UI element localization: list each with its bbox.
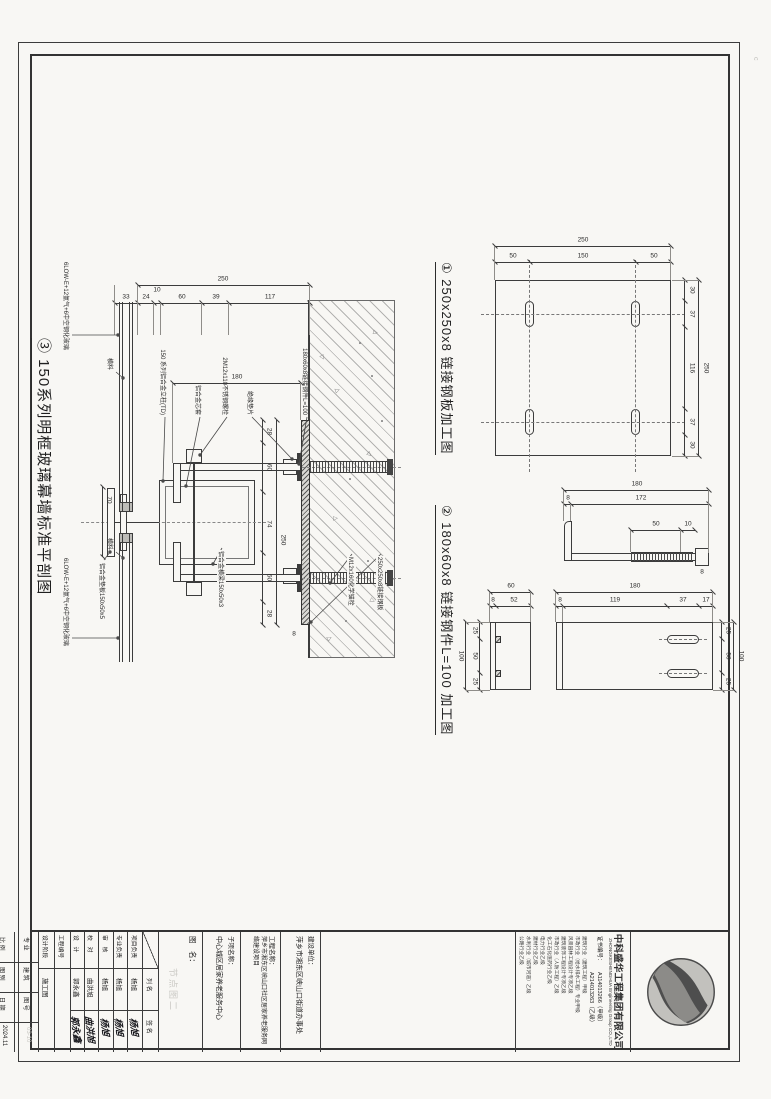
- dim-text: 37: [689, 418, 696, 425]
- line: [563, 490, 564, 521]
- line: [713, 622, 734, 623]
- line: [672, 280, 699, 281]
- weld-mark: [495, 670, 501, 677]
- label-member-right: 横料: [106, 538, 115, 550]
- centerline: [529, 260, 530, 472]
- cert-label: 证书编号：: [596, 936, 604, 964]
- dim-text: 8: [558, 597, 562, 604]
- angle-end-view: [490, 622, 531, 690]
- drawing-type-label: 图 别: [0, 967, 7, 981]
- plate-thickness-dim: 8: [292, 631, 296, 638]
- line: [153, 303, 154, 335]
- col-sign-header: 签 名: [145, 1020, 154, 1034]
- design-stage-value: 施工图: [41, 978, 51, 998]
- concrete-symbol: △: [372, 329, 380, 335]
- owner-value: 萍乡市湘东区峡山口街道办事处: [294, 936, 304, 1034]
- design-stage-row: 设计阶段 施工图: [39, 932, 55, 1052]
- sig-role: 审 核: [101, 935, 110, 952]
- speckle: [368, 560, 370, 562]
- anchor-cap: [387, 570, 393, 586]
- line: [680, 530, 681, 552]
- company-name: 中科盛华工程集团有限公司: [612, 932, 626, 1052]
- element: 化工石化医药行业乙级: [545, 936, 552, 1050]
- centerline: [481, 314, 685, 315]
- date-value: 2024.11: [1, 1025, 7, 1046]
- label-mullion: 150 系列铝合金立柱(TD): [159, 310, 168, 415]
- dim-line: [556, 606, 713, 607]
- dim-text: 52: [510, 597, 517, 604]
- speckle: [360, 342, 362, 344]
- sig-signature: 杨旭: [127, 1018, 142, 1037]
- centerline: [635, 260, 636, 472]
- dim-text: 37: [689, 310, 696, 317]
- sig-name: 杨旭: [101, 978, 111, 991]
- dim-text: 30: [689, 286, 696, 293]
- title-block: 中科盛华工程集团有限公司 ZHONGKESHENGHUA Engineering…: [30, 930, 730, 1050]
- dim-text: 17: [702, 597, 709, 604]
- sig-role: 项目负责: [130, 935, 139, 958]
- threaded-section: [631, 552, 693, 562]
- glass-line: [119, 533, 120, 662]
- bolt-nut-right: [186, 582, 202, 596]
- angle-foot: [564, 521, 572, 561]
- anchor-cap: [387, 459, 393, 475]
- sig-name: 郭永鑫: [72, 978, 82, 998]
- drawing-no-value: 03-10: [25, 1027, 31, 1042]
- line: [0, 992, 38, 993]
- dim-line: [138, 285, 310, 286]
- label-angle: 180x60x8链接钢件L=100: [301, 310, 310, 415]
- dim-text: 60: [266, 574, 273, 581]
- dim-line: [465, 622, 466, 690]
- dim-text: 250: [578, 237, 589, 244]
- dim-text: 30: [689, 441, 696, 448]
- steel-plate-outline: [495, 280, 671, 456]
- element: 市政行业（给水排水工程）专业甲级: [573, 936, 580, 1050]
- line: [555, 592, 556, 622]
- dim-text: 50: [472, 652, 479, 659]
- label-bolt: 2M12x110不锈钢螺栓: [221, 310, 230, 415]
- dim-text: 50: [725, 652, 732, 659]
- glass-line: [132, 533, 133, 662]
- dim-text: 28: [266, 428, 273, 435]
- label-member-left: 横料: [106, 358, 115, 370]
- line: [114, 285, 115, 335]
- dim-text: 10: [684, 521, 691, 528]
- dim-text: 180: [232, 374, 243, 381]
- dim-text: 33: [123, 294, 130, 301]
- dim-line: [721, 622, 722, 690]
- sig-role: 设 计: [72, 935, 81, 952]
- dim-text: 25: [725, 627, 732, 634]
- dim-text: 25: [725, 678, 732, 685]
- dim-line: [684, 280, 685, 456]
- line: [670, 246, 671, 280]
- speckle: [346, 620, 348, 622]
- line: [530, 592, 531, 622]
- dim-text: 50: [509, 253, 516, 260]
- sig-signature: 曲洪旭: [82, 1016, 98, 1044]
- dim-line: [495, 262, 671, 263]
- line: [712, 592, 713, 622]
- drawing-name-label: 图 名：: [187, 936, 198, 966]
- owner-cell: 建设单位： 萍乡市湘东区峡山口街道办事处: [281, 932, 321, 1052]
- dim-text: 150: [578, 253, 589, 260]
- sig-signature: 杨旭: [98, 1018, 113, 1037]
- dim-line: [490, 592, 531, 593]
- dim-text: 8: [700, 569, 704, 576]
- col-name-header: 列 名: [145, 978, 154, 992]
- wall-edge: [310, 300, 395, 301]
- dim-text: 116: [689, 363, 696, 373]
- plate-edge-line: [495, 622, 496, 690]
- label-backplate: 铝合金垫板150x50x5: [98, 562, 107, 620]
- sig-name: 曲洪旭: [86, 978, 96, 998]
- dim-text: 117: [265, 294, 275, 301]
- dim-text: 250: [280, 535, 287, 546]
- line: [172, 383, 173, 463]
- line: [0, 1022, 38, 1023]
- label-glass-left: 6LOW-E+12氩气+6中空钢化玻璃: [62, 262, 71, 350]
- cert-number-1: A114013266（甲级）: [596, 972, 604, 1025]
- centerline: [659, 673, 707, 674]
- dim-text: 60: [178, 294, 185, 301]
- dim-text: 100: [458, 651, 465, 662]
- dim-line: [698, 280, 699, 456]
- element: 风景园林工程设计专项乙级: [566, 936, 573, 1050]
- glass-line: [122, 533, 123, 662]
- dim-line: [115, 303, 310, 304]
- through-bolt: [193, 453, 195, 592]
- dim-text: 250: [703, 363, 710, 374]
- detail1-title: ① 250x250x8 链接钢板加工图: [435, 262, 457, 455]
- angle-foot-right: [173, 542, 181, 582]
- dim-line: [173, 383, 301, 384]
- sig-role: 校 对: [86, 935, 95, 952]
- line: [494, 246, 495, 280]
- drawing-no-label: 图 号: [22, 997, 31, 1011]
- corner-mark: c: [752, 57, 759, 61]
- label-anchor: M12x160化学锚栓: [347, 556, 356, 607]
- element: 公路行业乙级: [517, 936, 524, 1050]
- design-stage-label: 设计阶段: [41, 935, 50, 958]
- major-label: 专 业: [22, 937, 31, 951]
- line: [0, 962, 38, 963]
- element: 建筑行业（建筑工程）甲级: [580, 936, 587, 1050]
- dim-line: [556, 592, 713, 593]
- dim-text: 37: [679, 597, 686, 604]
- dim-line: [276, 420, 277, 625]
- dim-line: [564, 504, 709, 505]
- dim-line: [262, 420, 263, 625]
- dim-text: 250: [218, 276, 229, 283]
- glass-line: [122, 302, 123, 512]
- glass-line: [119, 302, 120, 512]
- dim-text: 119: [610, 597, 620, 604]
- dim-line: [495, 246, 671, 247]
- weld-mark: [495, 636, 501, 643]
- drawing-name-cell: 图 名： 节点图二: [159, 932, 203, 1052]
- label-glass-right: 6LOW-E+12氩气+6中空钢化玻璃: [62, 558, 71, 646]
- element: 市政行业（人防工程）乙级: [552, 936, 559, 1050]
- rod-end-cap: [695, 548, 709, 566]
- anchor-plate-edge: [301, 420, 310, 625]
- dim-text: 28: [266, 610, 273, 617]
- line: [54, 968, 70, 969]
- label-transom-profile: 铝合金横梁150x50x3: [217, 550, 226, 608]
- line: [466, 622, 490, 623]
- drawing-sheet: c 30 37 116 37 30 250 50 150 50: [0, 0, 771, 1099]
- chemical-anchor-bolt: [310, 461, 387, 473]
- line: [570, 504, 571, 521]
- dim-text: 10: [154, 287, 161, 294]
- major-value: 建 筑: [22, 967, 31, 981]
- owner-label: 建设单位：: [307, 936, 317, 969]
- angle-face-view: [556, 622, 713, 690]
- company-cell: 中科盛华工程集团有限公司 ZHONGKESHENGHUA Engineering…: [516, 932, 631, 1052]
- project-label: 工程名称：: [268, 936, 278, 969]
- dim-text: 70: [106, 496, 113, 503]
- dim-text: 180: [632, 481, 643, 488]
- dim-text: 50: [650, 253, 657, 260]
- speckle: [382, 420, 384, 422]
- line: [137, 285, 138, 335]
- line: [672, 456, 699, 457]
- subproject-cell: 子项名称： 中心城区居家养老服务中心: [203, 932, 241, 1052]
- sig-name: 杨旭: [115, 978, 125, 991]
- centerline: [481, 422, 685, 423]
- label-gasket: 绝缘垫片: [246, 310, 255, 415]
- dim-line: [564, 490, 709, 491]
- element: 电力行业乙级: [538, 936, 545, 1050]
- element: 建筑装饰工程设计专项乙级: [559, 936, 566, 1050]
- subproject-value: 中心城区居家养老服务中心: [214, 936, 224, 1020]
- bolt-nut-left: [186, 449, 202, 463]
- speckle: [350, 478, 352, 480]
- element: 建材行业乙级: [531, 936, 538, 1050]
- sig-name: 杨旭: [130, 978, 140, 991]
- logo-cell: [631, 932, 730, 1052]
- scanned-drawing-page: c 30 37 116 37 30 250 50 150 50: [0, 0, 771, 1099]
- project-number-row: 工程编号: [55, 932, 71, 1052]
- bend-line: [562, 622, 563, 690]
- dim-text: 25: [472, 678, 479, 685]
- date-label: 日 期: [0, 997, 7, 1011]
- dim-text: 74: [266, 520, 273, 527]
- project-value: 萍乡市湘东区峡山口社区居家养老服务网络建设项目: [251, 936, 267, 1048]
- qualification-list: 建筑行业（建筑工程）甲级市政行业（给水排水工程）专业甲级 风景园林工程设计专项乙…: [517, 936, 587, 1050]
- wall-edge: [310, 657, 395, 658]
- speckle: [372, 375, 374, 377]
- company-logo: [643, 954, 719, 1030]
- line: [708, 490, 709, 553]
- dim-text: 100: [738, 651, 745, 662]
- signature-table: 列 名 签 名 项目负责 杨旭 杨旭 专业负责 杨旭 杨旭 审 核 杨旭 杨旭 …: [71, 932, 159, 1052]
- sig-signature: 杨旭: [112, 1018, 127, 1037]
- glass-line: [132, 302, 133, 512]
- scale-label: 比 例: [0, 937, 7, 951]
- dim-text: 180: [630, 583, 641, 590]
- detail2-title: ② 180x60x8 链接钢件L=100 加工图: [435, 505, 457, 735]
- centerline: [659, 639, 707, 640]
- company-name-en: ZHONGKESHENGHUA Engineering Group CO.,LT…: [608, 932, 613, 1052]
- line: [562, 606, 563, 622]
- element: 水利行业（城市河道）乙级: [524, 936, 531, 1050]
- blank-cell: [321, 932, 516, 1052]
- drawing-name-ghost: 节点图二: [167, 968, 180, 1012]
- detail3-title: ③ 150系列明框玻璃幕墙标准平剖图: [31, 338, 55, 595]
- subproject-label: 子项名称：: [227, 936, 237, 969]
- dim-text: 50: [652, 521, 659, 528]
- label-plate: 250x250x8链接钢板: [376, 556, 385, 611]
- dim-text: 8: [491, 597, 495, 604]
- dim-text: 172: [636, 495, 647, 502]
- line: [466, 690, 490, 691]
- project-cell: 工程名称： 萍乡市湘东区峡山口社区居家养老服务网络建设项目: [241, 932, 281, 1052]
- glass-line: [129, 302, 130, 512]
- dim-text: 24: [142, 294, 149, 301]
- line: [489, 592, 490, 622]
- label-sleeve: 铝合金芯套: [194, 310, 203, 415]
- glass-line: [129, 533, 130, 662]
- dim-text: 8: [566, 495, 570, 502]
- dim-text: 39: [212, 294, 219, 301]
- dim-text: 25: [472, 627, 479, 634]
- footer-grid: 专 业 建 筑 图 号 03-10 比 例 图 别 日 期 2024.11: [0, 932, 39, 1052]
- wall-edge: [394, 300, 395, 658]
- dim-line: [102, 487, 103, 557]
- sig-role: 专业负责: [115, 935, 124, 958]
- line: [713, 690, 734, 691]
- line: [630, 530, 631, 552]
- cert-number-2: A214013263（乙级）: [588, 972, 596, 1025]
- dim-line: [733, 622, 734, 690]
- dim-text: 60: [266, 464, 273, 471]
- angle-foot-left: [173, 463, 181, 503]
- line: [38, 968, 54, 969]
- dim-text: 60: [507, 583, 514, 590]
- concrete-symbol: △: [332, 516, 339, 521]
- project-number-label: 工程编号: [57, 935, 66, 958]
- dim-line: [631, 530, 695, 531]
- dim-line: [479, 622, 480, 690]
- diagonal-cell: [143, 932, 158, 968]
